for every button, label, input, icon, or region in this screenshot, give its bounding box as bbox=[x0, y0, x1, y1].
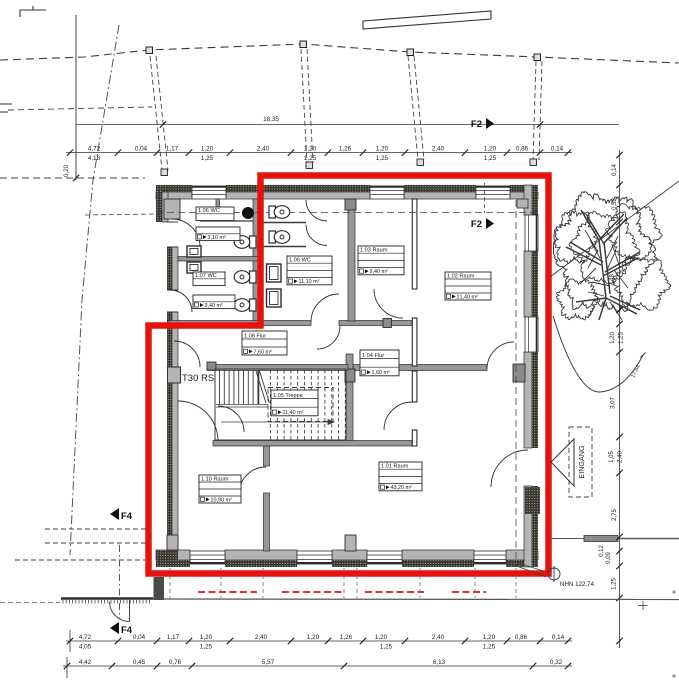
svg-text:1,25: 1,25 bbox=[201, 155, 214, 162]
svg-text:1,20: 1,20 bbox=[483, 634, 496, 641]
svg-text:1.07 WC: 1.07 WC bbox=[195, 273, 217, 279]
svg-text:1,25: 1,25 bbox=[483, 644, 496, 651]
svg-text:1,05: 1,05 bbox=[609, 451, 615, 463]
svg-text:1,17: 1,17 bbox=[166, 146, 179, 153]
svg-text:3,10 m²: 3,10 m² bbox=[208, 235, 226, 241]
svg-text:4,72: 4,72 bbox=[88, 146, 101, 153]
svg-text:11,40 m²: 11,40 m² bbox=[283, 410, 304, 416]
svg-text:F4: F4 bbox=[121, 511, 133, 522]
svg-text:2,40: 2,40 bbox=[432, 146, 445, 153]
svg-text:1.03 Raum: 1.03 Raum bbox=[360, 248, 388, 254]
svg-text:1,20: 1,20 bbox=[375, 634, 388, 641]
svg-text:0,04: 0,04 bbox=[133, 634, 146, 641]
svg-text:1,25: 1,25 bbox=[304, 155, 317, 162]
svg-text:10,90 m²: 10,90 m² bbox=[211, 497, 232, 503]
svg-text:2,40: 2,40 bbox=[618, 451, 624, 463]
svg-text:T30 RS: T30 RS bbox=[182, 373, 214, 384]
svg-text:1,25: 1,25 bbox=[380, 644, 393, 651]
svg-text:2,48: 2,48 bbox=[610, 274, 616, 286]
svg-text:4,18: 4,18 bbox=[88, 155, 101, 162]
svg-text:1,20: 1,20 bbox=[201, 146, 214, 153]
svg-text:1,25: 1,25 bbox=[612, 578, 618, 590]
svg-text:1.06 WC: 1.06 WC bbox=[198, 208, 220, 214]
svg-text:9,40 m²: 9,40 m² bbox=[370, 269, 388, 275]
svg-text:1,20: 1,20 bbox=[200, 634, 213, 641]
svg-text:0,14: 0,14 bbox=[552, 634, 565, 641]
svg-text:0,86: 0,86 bbox=[515, 634, 528, 641]
svg-text:F4: F4 bbox=[121, 625, 133, 636]
svg-text:0,09: 0,09 bbox=[606, 552, 612, 564]
svg-text:1,25: 1,25 bbox=[200, 644, 213, 651]
svg-text:2,40: 2,40 bbox=[432, 634, 445, 641]
svg-text:1.10 Raum: 1.10 Raum bbox=[201, 476, 229, 482]
svg-text:0,32: 0,32 bbox=[550, 659, 563, 666]
svg-text:21,40 m²: 21,40 m² bbox=[457, 294, 478, 300]
svg-text:43,20 m²: 43,20 m² bbox=[391, 485, 412, 491]
svg-text:0,14: 0,14 bbox=[551, 146, 564, 153]
svg-text:3,07: 3,07 bbox=[611, 397, 617, 409]
svg-text:2,40: 2,40 bbox=[255, 634, 268, 641]
svg-text:2,75: 2,75 bbox=[612, 509, 618, 521]
svg-text:1.08 Flur: 1.08 Flur bbox=[244, 333, 266, 339]
svg-text:F2: F2 bbox=[471, 219, 482, 230]
svg-text:0,04: 0,04 bbox=[135, 146, 148, 153]
svg-text:6,13: 6,13 bbox=[433, 659, 446, 666]
svg-text:1,60 m²: 1,60 m² bbox=[372, 370, 390, 376]
svg-text:1.04 Flur: 1.04 Flur bbox=[362, 353, 384, 359]
svg-text:1,26: 1,26 bbox=[340, 634, 353, 641]
svg-text:4,72: 4,72 bbox=[79, 634, 92, 641]
svg-text:1,20: 1,20 bbox=[610, 332, 616, 344]
svg-text:1,20: 1,20 bbox=[307, 634, 320, 641]
svg-text:5,57: 5,57 bbox=[262, 659, 275, 666]
svg-text:1,25: 1,25 bbox=[484, 155, 497, 162]
svg-text:4,05: 4,05 bbox=[79, 644, 92, 651]
svg-text:0,86: 0,86 bbox=[516, 146, 529, 153]
svg-text:1,20: 1,20 bbox=[376, 146, 389, 153]
svg-text:1,26: 1,26 bbox=[339, 146, 352, 153]
svg-text:0,12: 0,12 bbox=[599, 545, 605, 557]
svg-text:11,10 m²: 11,10 m² bbox=[299, 279, 320, 285]
svg-text:0,76: 0,76 bbox=[169, 659, 182, 666]
svg-text:1,20: 1,20 bbox=[304, 146, 317, 153]
svg-text:1,25: 1,25 bbox=[376, 155, 389, 162]
svg-text:0,45: 0,45 bbox=[133, 659, 146, 666]
svg-text:F2: F2 bbox=[471, 119, 482, 130]
svg-text:18,35: 18,35 bbox=[263, 116, 279, 123]
svg-text:7,60 m²: 7,60 m² bbox=[254, 349, 272, 355]
svg-text:0,52: 0,52 bbox=[612, 198, 618, 210]
svg-text:1.06 WC: 1.06 WC bbox=[289, 258, 311, 264]
svg-text:2,40: 2,40 bbox=[257, 146, 270, 153]
svg-text:1.02 Raum: 1.02 Raum bbox=[447, 273, 475, 279]
svg-text:1.01 Raum: 1.01 Raum bbox=[381, 464, 409, 470]
svg-text:1,25: 1,25 bbox=[619, 332, 625, 344]
svg-text:0,14: 0,14 bbox=[612, 164, 618, 176]
svg-text:NHN 122,74: NHN 122,74 bbox=[560, 581, 595, 588]
svg-text:0,20: 0,20 bbox=[63, 164, 70, 177]
svg-text:1.05 Treppe: 1.05 Treppe bbox=[273, 393, 303, 399]
svg-text:EINGANG: EINGANG bbox=[577, 445, 586, 479]
svg-text:1,20: 1,20 bbox=[484, 146, 497, 153]
svg-text:4,42: 4,42 bbox=[79, 659, 92, 666]
svg-text:1,17: 1,17 bbox=[167, 634, 180, 641]
svg-text:3,40 m²: 3,40 m² bbox=[205, 303, 223, 309]
